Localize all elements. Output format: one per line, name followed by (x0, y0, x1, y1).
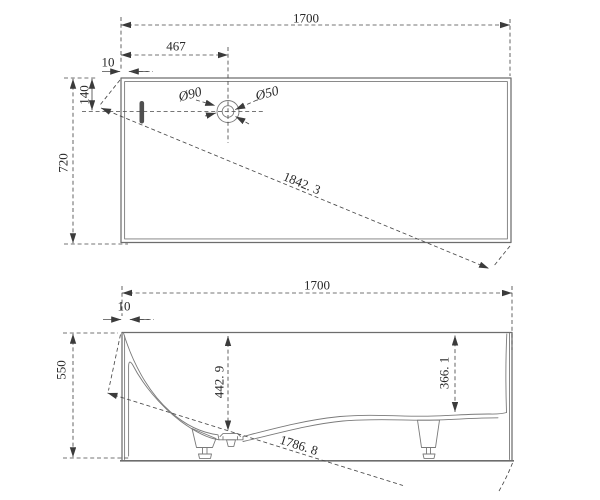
dim-label-overall-height: 550 (54, 360, 69, 380)
leader-dia90: Ø90 (176, 84, 216, 116)
dim-label-overall-width-top: 1700 (293, 11, 319, 26)
top-view: 1700 467 10 720 140 (56, 11, 512, 269)
right-leg-stem (427, 448, 431, 455)
left-leg-stem (203, 448, 208, 455)
dim-depth-at-right: 366. 1 (437, 336, 456, 413)
right-leg (418, 420, 440, 458)
left-leg-foot (199, 454, 212, 458)
technical-drawing-canvas: 1700 467 10 720 140 (0, 0, 600, 500)
dim-label-drain-offset-x: 467 (166, 39, 186, 54)
dim-label-drain-inner-dia: Ø50 (253, 83, 281, 104)
extension-line (100, 80, 120, 105)
dim-label-overall-width-side: 1700 (304, 278, 330, 293)
dim-label-diagonal-top: 1842. 3 (281, 169, 323, 198)
dim-label-depth-at-drain: 442. 9 (212, 366, 227, 399)
leader-dia50: Ø50 (235, 83, 280, 124)
dim-label-overall-depth: 720 (56, 153, 71, 173)
side-view: 1700 10 550 442. 9 366. 1 (54, 278, 515, 492)
dim-rim-thickness-side: 10 (103, 299, 154, 320)
dim-overall-height: 550 (54, 333, 130, 458)
dim-label-drain-offset-y: 140 (77, 85, 92, 105)
extension-line (499, 463, 513, 491)
left-leg (192, 429, 216, 459)
right-leg-foot (423, 454, 435, 458)
right-wall-inner-curve (506, 334, 507, 413)
dim-label-rim-top: 10 (102, 55, 115, 70)
dim-diagonal-side: 1786. 8 (108, 335, 513, 492)
tub-inner-outline (125, 82, 508, 239)
drawing-sheet: 1700 467 10 720 140 (0, 0, 600, 500)
dim-rim-thickness-top: 10 (102, 55, 154, 72)
dim-drain-offset-x: 467 (121, 39, 228, 56)
dim-diagonal-top: 1842. 3 (100, 80, 510, 269)
dim-label-diagonal-side: 1786. 8 (278, 432, 320, 458)
dim-label-rim-side: 10 (118, 299, 131, 314)
extension-line (109, 335, 121, 391)
dim-label-depth-at-right: 366. 1 (437, 357, 452, 390)
drain-assembly (220, 434, 241, 447)
dim-depth-at-drain: 442. 9 (212, 336, 229, 431)
extension-line (493, 246, 510, 267)
dim-drain-offset-y: 140 (77, 79, 93, 110)
dim-overall-width-side: 1700 (122, 278, 512, 351)
overflow-slot (140, 101, 145, 124)
